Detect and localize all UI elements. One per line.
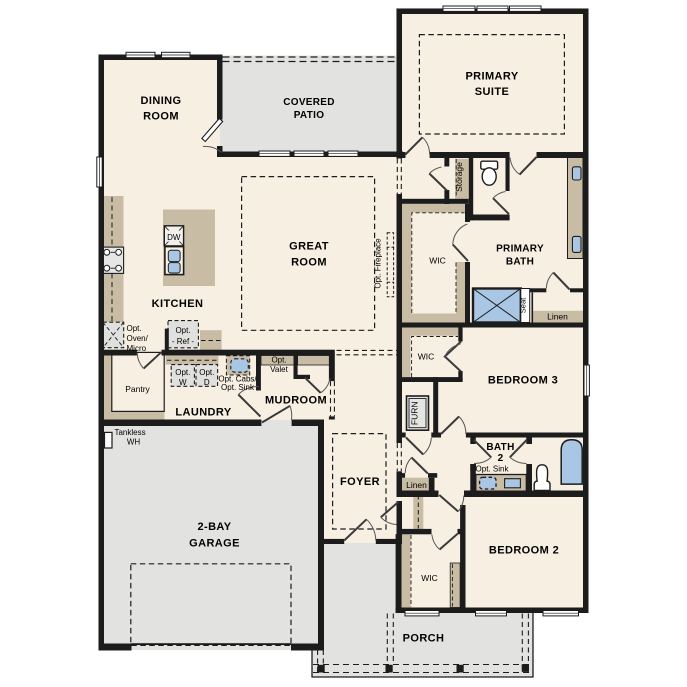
svg-text:Opt.: Opt. bbox=[271, 356, 286, 365]
svg-text:KITCHEN: KITCHEN bbox=[152, 298, 204, 310]
svg-text:SUITE: SUITE bbox=[475, 86, 509, 98]
svg-text:BEDROOM 2: BEDROOM 2 bbox=[489, 545, 559, 557]
svg-text:PRIMARY: PRIMARY bbox=[465, 71, 518, 83]
svg-text:BEDROOM 3: BEDROOM 3 bbox=[488, 375, 558, 387]
svg-text:DINING: DINING bbox=[141, 95, 182, 107]
svg-text:GREAT: GREAT bbox=[289, 241, 329, 253]
svg-text:PORCH: PORCH bbox=[403, 633, 445, 645]
svg-text:WIC: WIC bbox=[429, 256, 446, 266]
svg-text:WIC: WIC bbox=[421, 573, 438, 583]
svg-text:Opt.: Opt. bbox=[175, 326, 190, 335]
svg-text:Opt. Sink: Opt. Sink bbox=[221, 383, 255, 392]
svg-text:ROOM: ROOM bbox=[143, 111, 179, 123]
svg-text:Oven/: Oven/ bbox=[127, 334, 149, 343]
svg-text:2-BAY: 2-BAY bbox=[198, 521, 232, 533]
svg-text:Opt. Sink: Opt. Sink bbox=[476, 464, 510, 473]
svg-text:Valet: Valet bbox=[270, 365, 288, 374]
svg-text:D: D bbox=[204, 378, 210, 387]
svg-text:- Ref -: - Ref - bbox=[172, 337, 195, 346]
svg-text:DW: DW bbox=[167, 233, 181, 242]
svg-text:Micro: Micro bbox=[127, 344, 147, 353]
svg-text:W: W bbox=[179, 378, 187, 387]
svg-text:Pantry: Pantry bbox=[125, 384, 150, 394]
svg-text:Opt. Fireplace: Opt. Fireplace bbox=[374, 238, 383, 289]
svg-text:FOYER: FOYER bbox=[340, 476, 380, 488]
svg-text:Opt.: Opt. bbox=[199, 368, 214, 377]
svg-text:BATH: BATH bbox=[486, 442, 514, 453]
svg-text:Linen: Linen bbox=[406, 480, 427, 490]
svg-text:COVERED: COVERED bbox=[283, 97, 335, 108]
svg-text:WIC: WIC bbox=[418, 352, 435, 362]
svg-text:PATIO: PATIO bbox=[294, 110, 325, 121]
svg-text:MUDROOM: MUDROOM bbox=[265, 395, 327, 407]
svg-text:Seat: Seat bbox=[518, 297, 527, 313]
svg-text:LAUNDRY: LAUNDRY bbox=[175, 407, 231, 419]
svg-text:BATH: BATH bbox=[506, 257, 534, 268]
svg-text:Opt.: Opt. bbox=[175, 368, 190, 377]
svg-text:GARAGE: GARAGE bbox=[189, 538, 240, 550]
svg-text:Linen: Linen bbox=[547, 312, 568, 322]
svg-text:Storage: Storage bbox=[454, 162, 464, 192]
svg-text:2: 2 bbox=[498, 453, 504, 464]
svg-text:PRIMARY: PRIMARY bbox=[496, 244, 544, 255]
svg-text:FURN: FURN bbox=[410, 401, 420, 425]
svg-text:Opt.: Opt. bbox=[127, 324, 142, 333]
svg-text:ROOM: ROOM bbox=[291, 257, 327, 269]
svg-text:Tankless: Tankless bbox=[114, 428, 145, 437]
svg-text:WH: WH bbox=[127, 438, 141, 447]
